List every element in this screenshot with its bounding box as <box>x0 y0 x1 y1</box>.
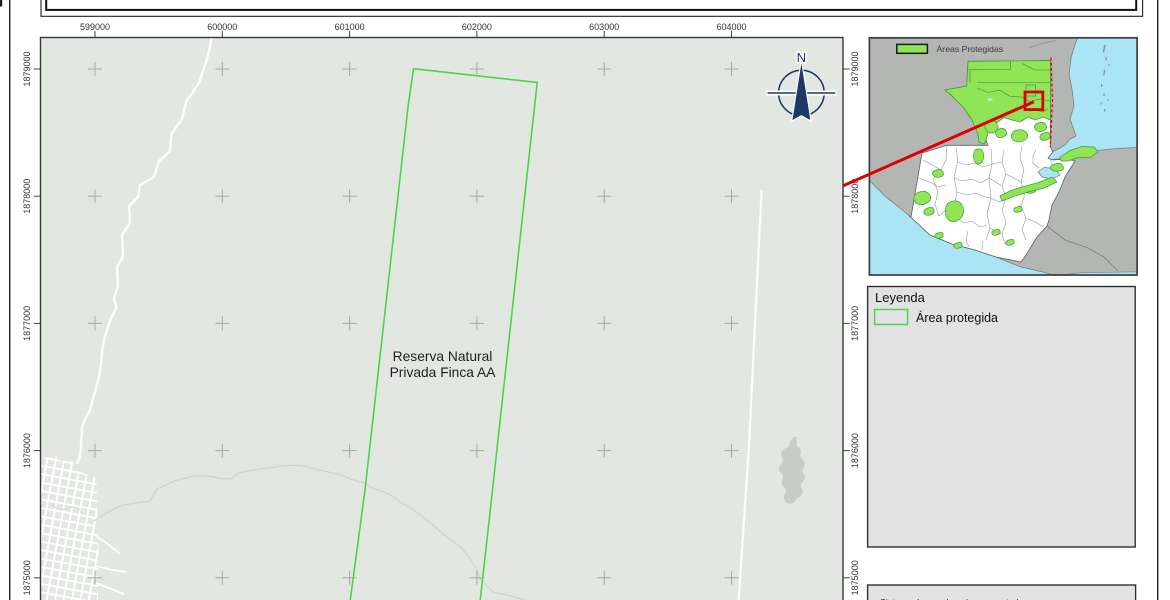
svg-text:1878000: 1878000 <box>22 179 32 214</box>
svg-text:1876000: 1876000 <box>22 433 32 468</box>
svg-text:1877000: 1877000 <box>22 306 32 341</box>
svg-text:599000: 599000 <box>80 22 110 32</box>
svg-text:Privada Finca AA: Privada Finca AA <box>390 365 497 380</box>
svg-text:Área protegida: Área protegida <box>916 310 998 325</box>
svg-text:N: N <box>797 50 807 65</box>
svg-text:Áreas Protegidas: Áreas Protegidas <box>937 44 1004 54</box>
svg-text:1875000: 1875000 <box>850 560 860 595</box>
svg-text:Reserva Natural: Reserva Natural <box>393 349 493 364</box>
svg-text:1879000: 1879000 <box>850 51 860 86</box>
svg-text:602000: 602000 <box>462 22 492 32</box>
svg-text:601000: 601000 <box>335 22 365 32</box>
svg-text:Leyenda: Leyenda <box>875 290 926 305</box>
svg-text:1878000: 1878000 <box>850 179 860 214</box>
svg-text:604000: 604000 <box>716 22 746 32</box>
svg-text:603000: 603000 <box>589 22 619 32</box>
svg-text:1876000: 1876000 <box>850 433 860 468</box>
svg-text:1879000: 1879000 <box>22 51 32 86</box>
svg-text:600000: 600000 <box>207 22 237 32</box>
svg-text:1877000: 1877000 <box>850 306 860 341</box>
svg-text:1875000: 1875000 <box>22 560 32 595</box>
